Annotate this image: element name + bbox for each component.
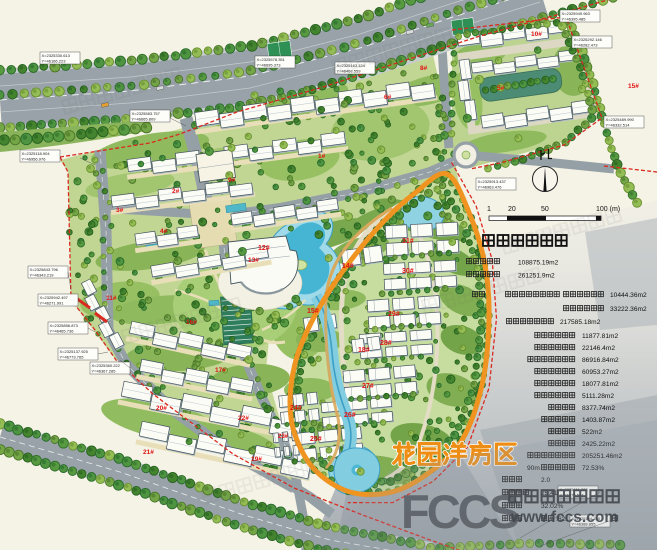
svg-text:22#: 22# [238,415,249,422]
svg-text:13#: 13# [248,257,259,264]
svg-text:24#: 24# [290,405,302,412]
svg-text:18#: 18# [358,347,370,354]
svg-text:20#: 20# [156,405,167,412]
svg-text:Y=46695.373: Y=46695.373 [257,62,282,67]
svg-text:11#: 11# [106,295,117,302]
svg-text:Y=46665.809: Y=46665.809 [132,116,157,121]
svg-text:Y=46271.991: Y=46271.991 [40,300,65,305]
svg-text:8#: 8# [420,65,428,72]
svg-text:Y=46395.485: Y=46395.485 [562,16,587,21]
svg-text:X=2325942.497: X=2325942.497 [40,295,69,300]
svg-text:Y=46332.514: Y=46332.514 [606,122,631,127]
svg-text:22146.4m2: 22146.4m2 [582,345,615,352]
svg-text:2#: 2# [172,188,180,195]
svg-text:Y=46343.219: Y=46343.219 [30,272,55,277]
svg-text:Y=46166.223: Y=46166.223 [42,58,67,63]
svg-text:18077.81m2: 18077.81m2 [582,381,619,388]
svg-text:X=2325330.613: X=2325330.613 [42,53,71,58]
svg-text:X=2325913.437: X=2325913.437 [478,179,507,184]
svg-text:Y=46465.736: Y=46465.736 [50,328,75,333]
svg-text:5111.28m2: 5111.28m2 [582,393,614,400]
svg-text:26#: 26# [344,412,356,419]
svg-text:Y=46367.285: Y=46367.285 [92,368,117,373]
svg-text:X=2325360.222: X=2325360.222 [92,363,121,368]
svg-text:X=2325118.904: X=2325118.904 [22,151,51,156]
svg-text:17#: 17# [215,367,226,374]
svg-text:86916.84m2: 86916.84m2 [582,357,619,364]
svg-text:15#: 15# [628,83,639,90]
svg-text:X=2325583.757: X=2325583.757 [132,111,161,116]
svg-text:8377.74m2: 8377.74m2 [582,405,615,412]
svg-text:31#: 31# [402,238,414,245]
svg-text:19#: 19# [251,456,262,463]
svg-text:50: 50 [541,206,549,213]
svg-text:Y=46773.765: Y=46773.765 [60,354,85,359]
svg-text:9#: 9# [228,177,236,184]
svg-text:1: 1 [487,206,491,213]
svg-text:X=2325949.963: X=2325949.963 [562,11,591,16]
svg-text:6#: 6# [384,94,392,101]
svg-text:1403.87m2: 1403.87m2 [582,417,615,424]
svg-text:4#: 4# [160,228,168,235]
svg-text:23#: 23# [278,434,289,440]
svg-text:30#: 30# [402,268,414,275]
svg-text:X=2325489.990: X=2325489.990 [606,117,635,122]
svg-text:X=2325843.796: X=2325843.796 [30,267,59,272]
svg-text:X=2325292.146: X=2325292.146 [574,37,603,42]
svg-text:www.fccs.com: www.fccs.com [510,509,618,526]
svg-text:FCCS: FCCS [401,485,519,538]
svg-text:Y=46282.473: Y=46282.473 [574,42,599,47]
svg-text:217585.18m2: 217585.18m2 [560,319,601,326]
svg-text:3#: 3# [116,207,124,214]
svg-text:10#: 10# [531,31,542,38]
svg-text:33222.36m2: 33222.36m2 [610,306,647,313]
svg-text:261251.9m2: 261251.9m2 [518,273,555,280]
svg-text:21#: 21# [143,449,154,456]
svg-text:X=2325578.351: X=2325578.351 [257,57,286,62]
svg-text:Y=46956.976: Y=46956.976 [22,156,47,161]
svg-text:Y=46963.476: Y=46963.476 [478,184,503,189]
svg-text:29#: 29# [388,311,400,318]
svg-text:X=2325137.925: X=2325137.925 [60,349,89,354]
svg-text:X=2325856.873: X=2325856.873 [50,323,79,328]
svg-text:60953.27m2: 60953.27m2 [582,369,619,376]
svg-text:25#: 25# [310,436,322,443]
svg-text:27#: 27# [362,383,374,390]
svg-text:5#: 5# [497,85,505,92]
svg-text:1#: 1# [318,153,326,160]
svg-text:15#: 15# [307,308,319,315]
svg-text:108875.19m2: 108875.19m2 [518,260,559,267]
svg-text:14#: 14# [342,263,354,270]
svg-text:20: 20 [508,206,516,213]
svg-text:12#: 12# [258,245,270,252]
svg-text:28#: 28# [380,340,392,347]
svg-text:10444.36m2: 10444.36m2 [610,292,647,299]
svg-text:11877.81m2: 11877.81m2 [582,333,619,340]
